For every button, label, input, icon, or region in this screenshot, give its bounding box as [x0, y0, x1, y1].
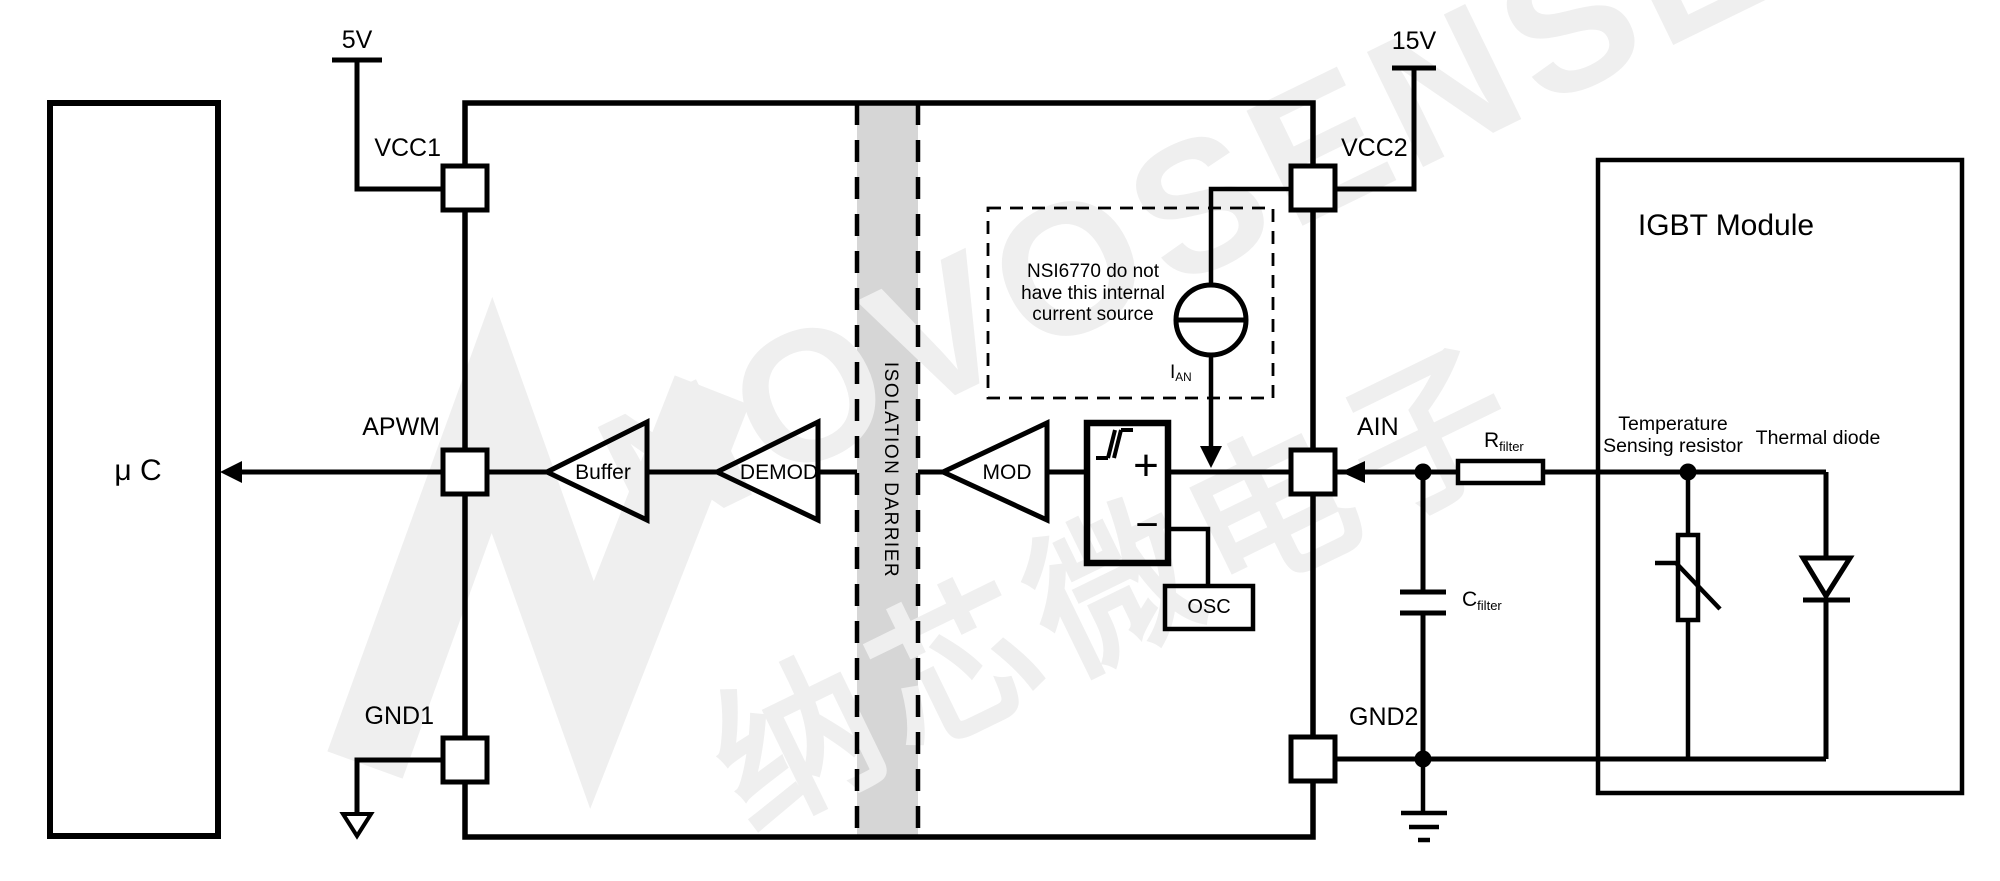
thermal-diode-label: Thermal diode — [1718, 428, 1918, 450]
pin-label-gnd2: GND2 — [1349, 703, 1418, 731]
ian-label: IAN — [1170, 362, 1192, 383]
note-line-1: NSI6770 do not — [993, 261, 1193, 283]
nsi6770-note: NSI6770 do not have this internal curren… — [993, 261, 1193, 326]
supply-15v-label: 15V — [1364, 27, 1464, 55]
igbt-module-title: IGBT Module — [1576, 209, 1876, 243]
note-line-3: current source — [993, 304, 1193, 326]
rfilter-label: Rfilter — [1484, 429, 1524, 453]
pin-label-gnd1: GND1 — [284, 702, 434, 730]
comparator-plus-label: + — [1106, 444, 1186, 488]
cfilter-label: Cfilter — [1462, 588, 1502, 612]
mod-label: MOD — [957, 461, 1057, 485]
mcu-label: μ C — [38, 454, 238, 488]
pin-label-vcc2: VCC2 — [1341, 134, 1408, 162]
schematic-canvas: NOVOSENSE 纳芯微电子 — [0, 0, 2000, 881]
pin-label-apwm: APWM — [290, 413, 440, 441]
pin-label-ain: AIN — [1357, 413, 1399, 441]
comparator-minus-label: − — [1107, 505, 1187, 545]
note-line-2: have this internal — [993, 283, 1193, 305]
pin-label-vcc1: VCC1 — [291, 134, 441, 162]
demod-label: DEMOD — [719, 461, 839, 485]
buffer-label: Buffer — [553, 461, 653, 485]
isolation-barrier-label: ISOLATION DARRIER — [875, 270, 901, 670]
osc-label: OSC — [1159, 596, 1259, 618]
supply-5v-label: 5V — [307, 26, 407, 54]
